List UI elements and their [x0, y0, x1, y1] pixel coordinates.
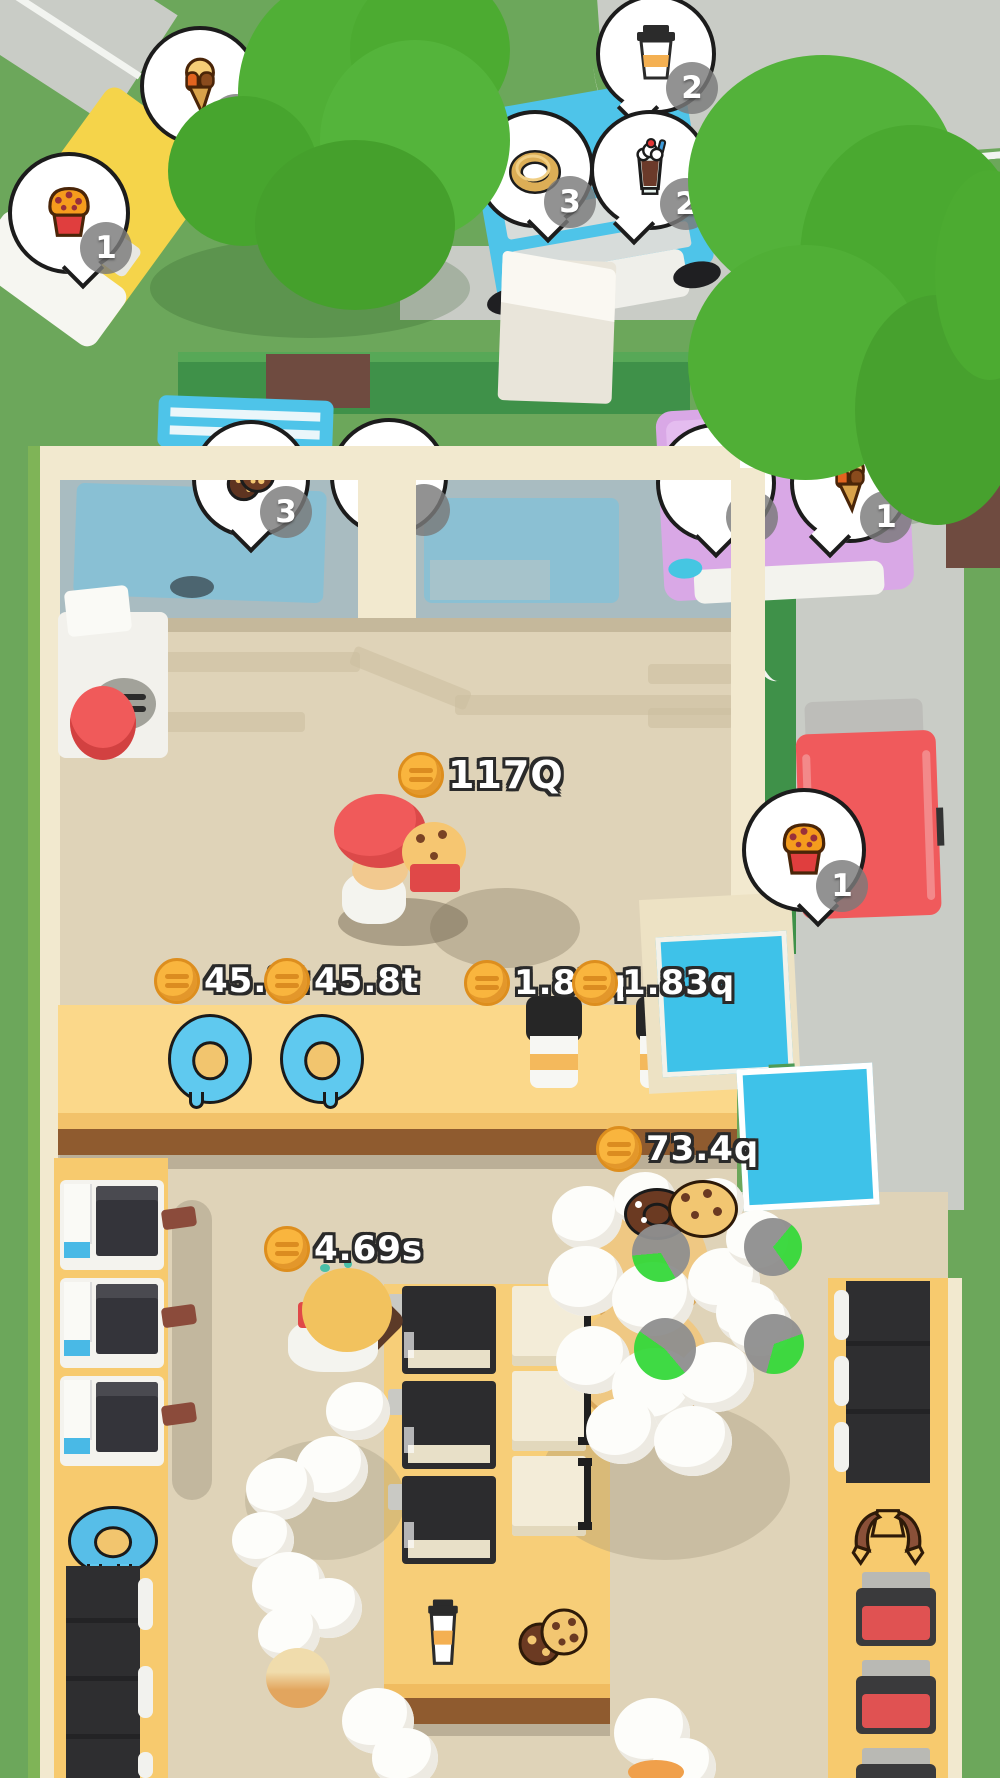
- floor-tile-line: [648, 664, 733, 684]
- coffee-print-icon: [418, 1598, 468, 1668]
- game-scene: 3: [0, 0, 1000, 1778]
- terminal-flap: [64, 585, 132, 637]
- coin-icon: [464, 960, 510, 1006]
- fryer-door: [64, 1184, 92, 1244]
- order-count-badge: 3: [544, 176, 596, 228]
- choc-chip: [681, 1193, 690, 1202]
- customer: [326, 1382, 390, 1440]
- order-count-badge: 1: [80, 222, 132, 274]
- cone-base: [628, 1760, 684, 1778]
- coin-icon: [398, 752, 444, 798]
- coin-icon: [264, 1226, 310, 1272]
- fryer-accent: [64, 1340, 90, 1356]
- conveyor-handle: [834, 1422, 849, 1472]
- order-bubble-coffee: 2: [596, 0, 716, 114]
- donut-conveyor[interactable]: [66, 1566, 140, 1778]
- conveyor-handle: [138, 1578, 153, 1630]
- cup-body: [530, 1036, 578, 1088]
- customer: [654, 1406, 732, 1476]
- coin-icon: [572, 960, 618, 1006]
- worker-head: [302, 1268, 392, 1352]
- conveyor-seam: [846, 1409, 930, 1414]
- worker-lobby: [288, 1258, 398, 1378]
- conveyor-handle: [834, 1356, 849, 1406]
- drive-thru-sign: [498, 258, 617, 404]
- machine-base: [408, 1350, 490, 1368]
- espresso-machine[interactable]: [396, 1381, 496, 1471]
- conveyor-handle: [138, 1666, 153, 1718]
- espresso-machine[interactable]: [396, 1286, 496, 1376]
- case-handle-cap: [578, 1522, 592, 1530]
- sprinkle: [641, 1217, 647, 1223]
- eating-progress-timer: [634, 1318, 696, 1380]
- coffee-cup-on-counter[interactable]: [526, 996, 582, 1092]
- fryer-screen: [96, 1284, 158, 1354]
- customer: [552, 1186, 622, 1250]
- customer-softserve: [338, 1684, 448, 1778]
- donut-fryer[interactable]: [58, 1374, 170, 1468]
- machine-base: [408, 1540, 490, 1558]
- croissant-print-icon: [846, 1504, 930, 1572]
- money-amount: 73.4q: [646, 1129, 759, 1169]
- display-case[interactable]: [512, 1456, 586, 1536]
- conveyor-seam: [846, 1341, 930, 1346]
- money-label: 1.83q: [572, 960, 735, 1006]
- conveyor-seam: [66, 1676, 140, 1681]
- donut-fryer[interactable]: [58, 1178, 170, 1272]
- fryer-screen: [96, 1382, 158, 1452]
- choc-chip: [713, 1207, 722, 1216]
- order-bubble-muffin: 1: [8, 152, 130, 274]
- eating-progress-timer: [744, 1314, 804, 1374]
- mixer-front: [862, 1694, 930, 1728]
- swirl: [372, 1728, 438, 1778]
- window-mullion: [358, 446, 416, 618]
- icing-drip: [323, 1092, 338, 1109]
- donut-fryer[interactable]: [58, 1276, 170, 1370]
- money-label: 4.69s: [264, 1226, 423, 1272]
- donut-on-counter[interactable]: [280, 1014, 364, 1104]
- order-count-badge: 3: [260, 486, 312, 538]
- donut-hole: [304, 1041, 340, 1081]
- car-door-handle: [936, 808, 944, 846]
- machine-base: [408, 1445, 490, 1463]
- sign-top-face: [501, 250, 616, 322]
- glass-car-wheel: [170, 576, 214, 598]
- coin-icon: [596, 1126, 642, 1172]
- choc-chip: [430, 852, 438, 860]
- espresso-machine[interactable]: [396, 1476, 496, 1566]
- eating-progress-timer: [632, 1224, 690, 1282]
- choc-chip: [703, 1189, 712, 1198]
- equipment-shadow: [172, 1200, 212, 1500]
- money-amount: 1.83q: [622, 963, 735, 1003]
- shop-wall-right-bottom: [948, 1278, 962, 1778]
- order-count-badge: 2: [666, 62, 718, 114]
- donut-hole: [94, 1526, 132, 1558]
- money-label: 45.8t: [264, 958, 419, 1004]
- choc-chip: [416, 834, 425, 843]
- money-label: 117Q: [398, 752, 564, 798]
- sprinkle: [635, 1201, 642, 1208]
- conveyor-handle: [138, 1752, 153, 1778]
- customer: [586, 1398, 658, 1464]
- mixer-machine[interactable]: [854, 1572, 938, 1648]
- customer-softserve: [610, 1694, 720, 1778]
- machine-glint: [404, 1332, 414, 1358]
- mixer-machine[interactable]: [854, 1748, 938, 1778]
- choc-chip: [438, 830, 447, 839]
- worker-at-terminal: [70, 686, 136, 760]
- fryer-accent: [64, 1438, 90, 1454]
- donut-on-counter[interactable]: [168, 1014, 252, 1104]
- fryer-door: [64, 1282, 92, 1342]
- fryer-accent: [64, 1242, 90, 1258]
- customer: [246, 1458, 314, 1520]
- money-amount: 45.8t: [314, 961, 419, 1001]
- conveyor-seam: [66, 1734, 140, 1739]
- worker-carrying-muffin: [330, 790, 480, 930]
- cone-base: [266, 1648, 330, 1708]
- conveyor-seam: [66, 1618, 140, 1623]
- icing-drip: [189, 1092, 204, 1109]
- coin-icon: [264, 958, 310, 1004]
- floor-tile-line: [648, 708, 733, 728]
- money-label: 73.4q: [596, 1126, 759, 1172]
- order-bubble-muffin: 1: [742, 788, 866, 912]
- carried-muffin-cup: [410, 864, 460, 892]
- tree-canopy: [255, 140, 455, 310]
- money-amount: 117Q: [448, 753, 564, 797]
- fryer-door: [64, 1380, 92, 1440]
- machine-glint: [404, 1427, 414, 1453]
- mixer-front: [862, 1606, 930, 1640]
- case-handle: [584, 1460, 591, 1528]
- fryer-screen: [96, 1186, 158, 1256]
- glass-car-2-panel: [430, 560, 550, 600]
- coin-icon: [154, 958, 200, 1004]
- cup-band: [530, 1054, 578, 1070]
- machine-glint: [404, 1522, 414, 1548]
- eating-progress-timer: [744, 1218, 802, 1276]
- choc-chip: [691, 1211, 699, 1219]
- conveyor-handle: [834, 1290, 849, 1340]
- mixer-body: [856, 1764, 936, 1778]
- order-count-badge: 1: [816, 860, 868, 912]
- cookies-print-icon: [508, 1602, 598, 1668]
- case-handle-cap: [578, 1458, 592, 1466]
- pastry-conveyor[interactable]: [846, 1281, 930, 1483]
- donut-hole: [192, 1041, 228, 1081]
- money-amount: 4.69s: [314, 1229, 423, 1269]
- mixer-machine[interactable]: [854, 1660, 938, 1736]
